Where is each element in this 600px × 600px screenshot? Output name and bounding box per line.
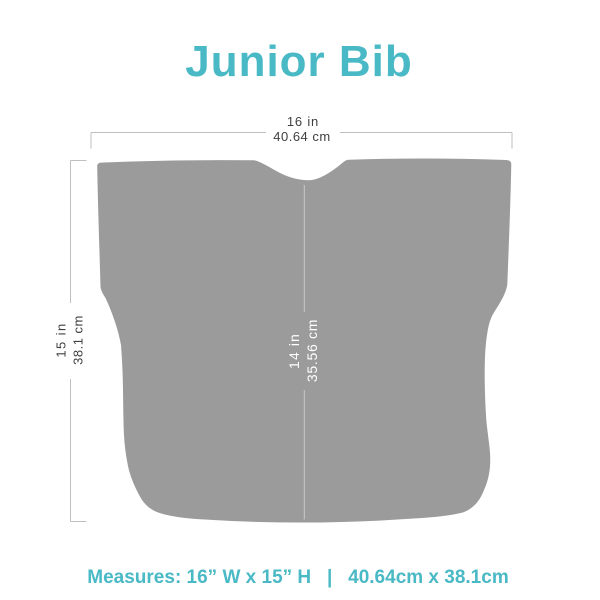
svg-text:15 in: 15 in (54, 322, 69, 357)
svg-text:16 in: 16 in (287, 114, 319, 129)
svg-text:Junior Bib: Junior Bib (185, 37, 413, 86)
svg-text:14 in: 14 in (286, 333, 302, 369)
svg-text:35.56 cm: 35.56 cm (304, 319, 320, 382)
svg-text:38.1 cm: 38.1 cm (71, 315, 86, 365)
svg-text:40.64 cm: 40.64 cm (273, 129, 330, 144)
svg-text:Measures: 16” W x 15” H |: Measures: 16” W x 15” H | 40.64cm x 38.1… (87, 567, 508, 588)
